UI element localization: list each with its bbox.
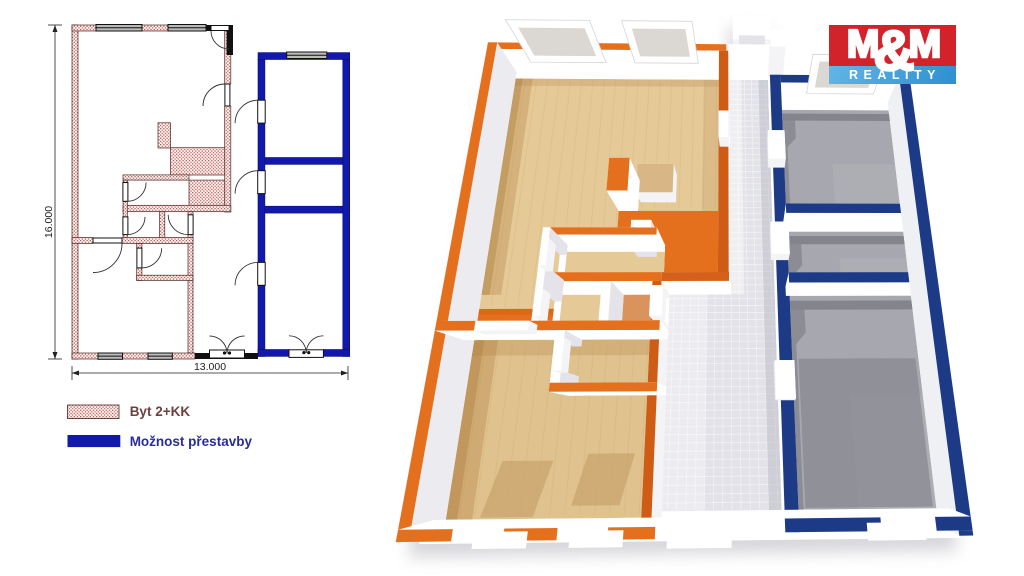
svg-text:16.000: 16.000 xyxy=(43,206,55,238)
svg-text:13.000: 13.000 xyxy=(194,361,226,373)
svg-text:Možnost přestavby: Možnost přestavby xyxy=(130,434,253,449)
svg-text:Byt 2+KK: Byt 2+KK xyxy=(130,404,191,419)
